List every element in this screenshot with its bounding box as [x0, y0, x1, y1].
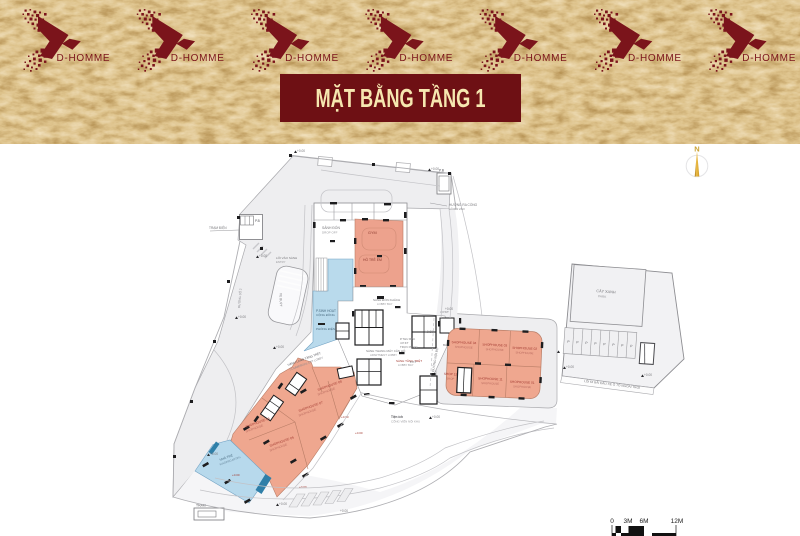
svg-text:+0.00: +0.00 [341, 415, 349, 419]
svg-text:LOBBY BAY: LOBBY BAY [377, 302, 393, 306]
svg-text:+0.00: +0.00 [259, 254, 267, 258]
svg-text:ENTRY: ENTRY [276, 260, 286, 264]
svg-text:GYM: GYM [368, 231, 377, 235]
svg-text:PHÒNG ĐIỆN: PHÒNG ĐIỆN [316, 326, 335, 331]
svg-text:SHOPHOUSE: SHOPHOUSE [486, 347, 504, 352]
svg-text:P.KT: P.KT [410, 360, 416, 364]
svg-text:MẶT BẰNG TẦNG 1: MẶT BẰNG TẦNG 1 [316, 83, 486, 113]
svg-text:TRẠM ĐIỆN: TRẠM ĐIỆN [209, 225, 227, 230]
svg-text:DROP OFF: DROP OFF [322, 231, 338, 235]
svg-text:XE BUÝT: XE BUÝT [279, 293, 283, 307]
svg-text:SHOPHOUSE: SHOPHOUSE [481, 381, 499, 386]
svg-text:APARTMENT LOBBY: APARTMENT LOBBY [370, 353, 397, 357]
svg-text:SHOPHOUSE: SHOPHOUSE [513, 384, 531, 389]
svg-text:+0.00: +0.00 [238, 315, 246, 319]
svg-text:+0.00: +0.00 [299, 485, 307, 489]
svg-text:CÔNG VIÊN NỘI KHU: CÔNG VIÊN NỘI KHU [391, 419, 420, 424]
svg-text:Tiện ích: Tiện ích [391, 415, 403, 419]
svg-text:6M: 6M [639, 518, 648, 525]
svg-text:+0.00: +0.00 [566, 365, 574, 369]
svg-text:SẢNH ĐÓN: SẢNH ĐÓN [322, 225, 340, 230]
svg-text:+0.00: +0.00 [445, 307, 453, 311]
svg-text:+0.00: +0.00 [297, 149, 305, 153]
svg-text:+0.00: +0.00 [340, 509, 348, 513]
svg-text:+0.00: +0.00 [210, 452, 218, 456]
svg-text:TRỰC PCCC: TRỰC PCCC [400, 345, 417, 349]
svg-text:PARK: PARK [598, 294, 608, 299]
svg-text:SHOPHOUSE: SHOPHOUSE [516, 350, 534, 355]
svg-text:12M: 12M [671, 518, 684, 525]
svg-text:+0.00: +0.00 [431, 167, 439, 171]
svg-text:+0.00: +0.00 [355, 431, 363, 435]
svg-text:SHOP: SHOP [446, 376, 454, 380]
svg-text:+0.00: +0.00 [432, 415, 440, 419]
svg-text:N: N [694, 145, 699, 154]
svg-text:HỒ TRẺ EM: HỒ TRẺ EM [363, 257, 382, 262]
svg-text:3M: 3M [623, 518, 632, 525]
svg-text:SHOPHOUSE: SHOPHOUSE [455, 345, 473, 350]
svg-text:+0.00: +0.00 [425, 330, 433, 334]
svg-text:CỘNG ĐỒNG: CỘNG ĐỒNG [316, 312, 336, 317]
svg-text:+0.00: +0.00 [279, 502, 287, 506]
svg-text:P.B: P.B [255, 219, 260, 223]
svg-text:+0.00: +0.00 [232, 473, 240, 477]
svg-text:LỐI RA VÀO: LỐI RA VÀO [449, 206, 466, 211]
svg-text:+0.00: +0.00 [644, 373, 652, 377]
svg-text:+0.00: +0.00 [276, 345, 284, 349]
svg-text:0: 0 [610, 518, 614, 525]
